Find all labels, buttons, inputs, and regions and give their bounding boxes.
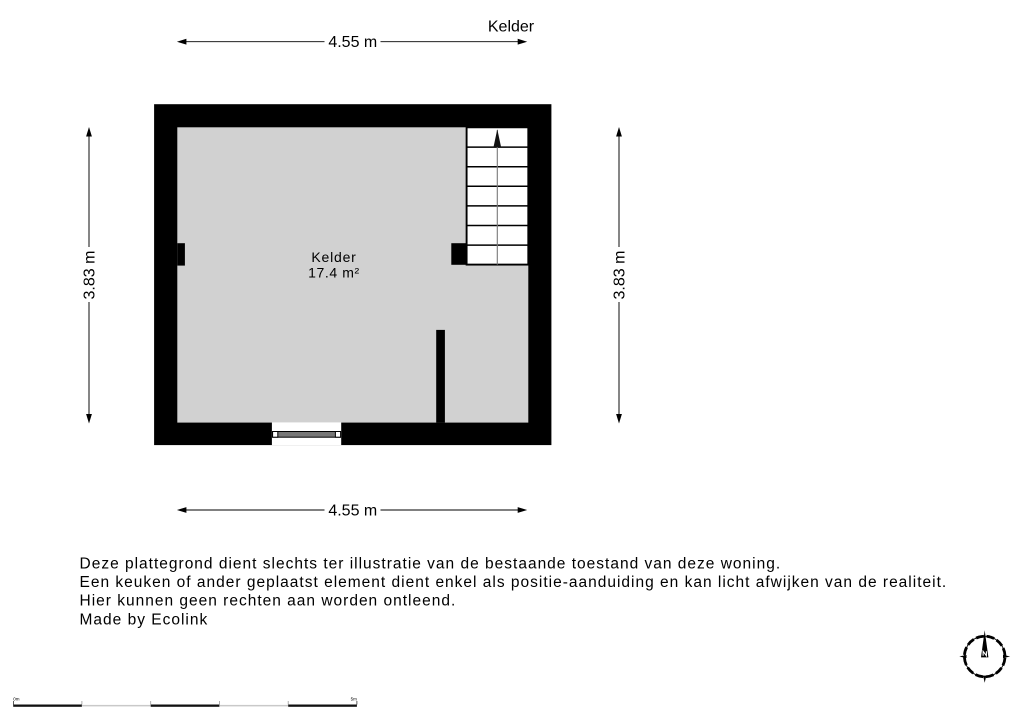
svg-text:3.83 m: 3.83 m	[82, 251, 99, 300]
svg-text:Made by Ecolink: Made by Ecolink	[80, 611, 209, 628]
svg-text:Kelder: Kelder	[488, 19, 535, 36]
svg-text:Een keuken of ander geplaatst: Een keuken of ander geplaatst element di…	[80, 574, 948, 591]
svg-text:5m: 5m	[351, 697, 358, 702]
svg-text:Deze plattegrond dient slechts: Deze plattegrond dient slechts ter illus…	[80, 556, 782, 573]
svg-text:17.4 m²: 17.4 m²	[308, 265, 360, 281]
svg-text:4.55 m: 4.55 m	[328, 34, 377, 51]
svg-text:Kelder: Kelder	[311, 249, 356, 265]
svg-text:Hier kunnen geen rechten aan w: Hier kunnen geen rechten aan worden ontl…	[80, 593, 457, 610]
svg-text:3.83 m: 3.83 m	[612, 251, 629, 300]
svg-text:0m: 0m	[13, 697, 20, 702]
svg-text:4.55 m: 4.55 m	[328, 503, 377, 520]
